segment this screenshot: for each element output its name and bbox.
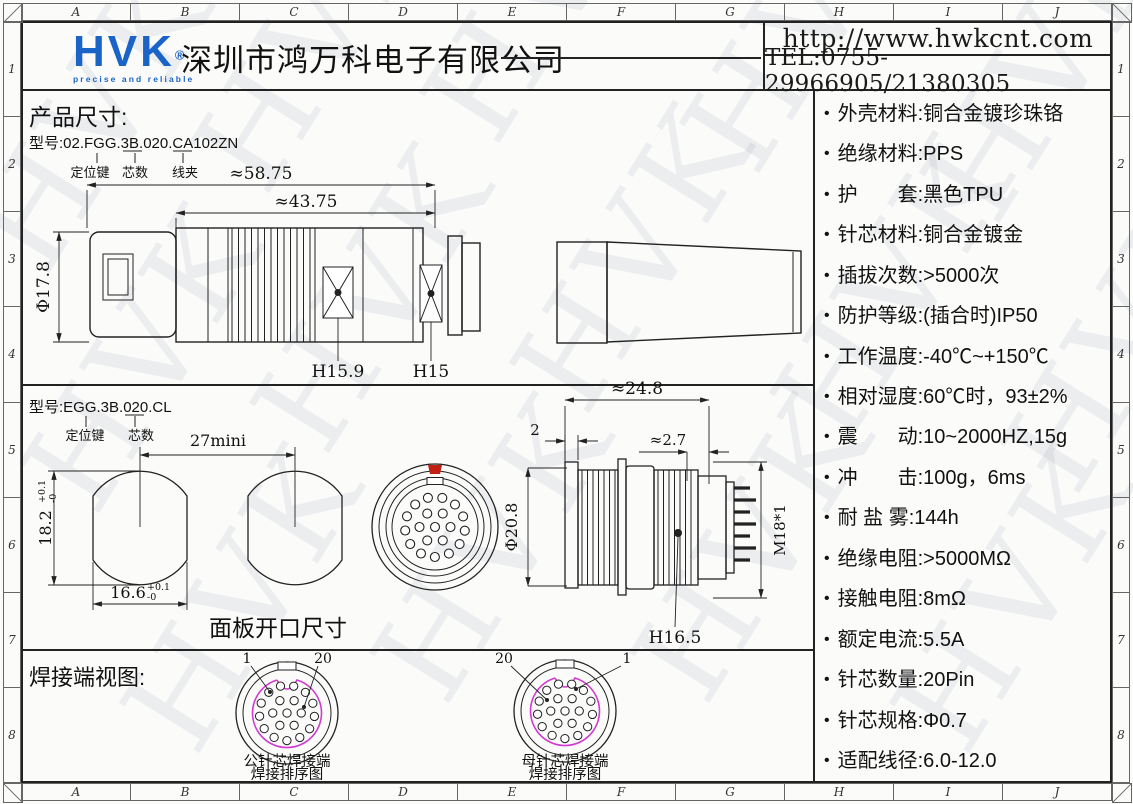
female-solder-view: [514, 660, 616, 762]
dim-receptacle-length: ≈24.8: [611, 379, 663, 399]
spec-text: 绝缘材料:PPS: [838, 137, 964, 166]
drawing-frame: HVK® precise and reliable 深圳市鸿万科电子有限公司 h…: [21, 21, 1112, 783]
plug-details: [103, 228, 413, 342]
grid-number: 5: [4, 403, 20, 498]
bullet-icon: •: [824, 388, 830, 406]
grid-number: 2: [1113, 117, 1129, 212]
female-pin-first-label: 1: [623, 651, 632, 667]
bullet-icon: •: [824, 105, 830, 123]
tolerance-minus: -0: [147, 592, 156, 603]
section-product-dimensions: 产品尺寸: 型号:02.FGG.3B.020.CA102ZN 定位键 芯数 线夹…: [29, 104, 801, 382]
hex-leader: [675, 537, 678, 627]
callout-pin-count: 芯数: [128, 428, 154, 443]
frame-corner: [3, 783, 23, 803]
spec-item: • 冲 击:100g，6ms: [824, 461, 1108, 490]
grid-number: 4: [1113, 307, 1129, 402]
grid-letter: H: [785, 4, 894, 20]
crimp-symbol-1: [323, 267, 353, 361]
dimension-lines: [48, 447, 295, 610]
tolerance-minus: -0: [48, 494, 59, 503]
bullet-icon: •: [824, 186, 830, 204]
grid-letter: I: [894, 4, 1003, 20]
grid-letter: H: [785, 784, 894, 800]
spec-text: 针芯数量:20Pin: [838, 663, 975, 692]
technical-drawing: 产品尺寸: 型号:02.FGG.3B.020.CA102ZN 定位键 芯数 线夹…: [23, 89, 813, 780]
spec-text: 接触电阻:8mΩ: [838, 582, 966, 611]
male-pin-first-label: 1: [243, 651, 252, 667]
bullet-icon: •: [824, 550, 830, 568]
bullet-icon: •: [824, 509, 830, 527]
spec-item: • 绝缘电阻:>5000MΩ: [824, 542, 1108, 571]
bullet-icon: •: [824, 226, 830, 244]
thread-lines: [582, 470, 691, 585]
spec-text: 工作温度:-40℃~+150℃: [838, 340, 1049, 369]
grid-number: 4: [4, 307, 20, 402]
callout-keying: 定位键: [65, 428, 104, 443]
model-number-plug: 型号:02.FGG.3B.020.CA102ZN: [29, 135, 238, 152]
leader-dot: [574, 687, 578, 691]
grid-number: 5: [1113, 403, 1129, 498]
dim-center-spacing: 27mini: [190, 431, 246, 450]
spec-text: 外壳材料:铜合金镀珍珠铬: [838, 97, 1064, 126]
dim-back-gap: ≈2.7: [650, 431, 686, 449]
spec-item: • 外壳材料:铜合金镀珍珠铬: [824, 97, 1108, 126]
dim-receptacle-diameter: Φ20.8: [502, 503, 521, 552]
spec-text: 震 动:10~2000HZ,15g: [838, 420, 1068, 449]
hex-reference-dot: [674, 529, 682, 537]
model2-callout-leaders: [86, 415, 144, 427]
spec-item: • 针芯规格:Φ0.7: [824, 704, 1108, 733]
contact-block: http://www.hwkcnt.com TEL:0755-29966905/…: [763, 23, 1111, 89]
grid-letter: F: [567, 4, 676, 20]
grid-letter: D: [349, 784, 458, 800]
model-number-receptacle: 型号:EGG.3B.020.CL: [29, 399, 172, 416]
callout-pin-count: 芯数: [122, 165, 148, 180]
grid-numbers-right: 12345678: [1112, 21, 1130, 783]
dim-flange-thickness: 2: [530, 421, 540, 439]
grid-number: 8: [1113, 688, 1129, 782]
grid-letter: F: [567, 784, 676, 800]
leader-dot: [545, 698, 549, 702]
keying-mark-red: [428, 465, 442, 474]
datasheet-page: HVK HVK HVK HVK HVK HVK HVK HVK HVK HVK …: [0, 0, 1133, 804]
grid-number: 1: [4, 22, 20, 117]
spec-item: • 防护等级:(插合时)IP50: [824, 299, 1108, 328]
grid-number: 8: [4, 688, 20, 782]
bullet-icon: •: [824, 348, 830, 366]
spec-text: 针芯材料:铜合金镀金: [838, 218, 1024, 247]
grid-letter: A: [22, 784, 131, 800]
male-caption-line2: 焊接排序图: [251, 766, 324, 780]
grid-letter: C: [240, 4, 349, 20]
key-notch: [427, 478, 443, 485]
bullet-icon: •: [824, 145, 830, 163]
telephone: TEL:0755-29966905/21380305: [765, 56, 1111, 86]
leader-dot: [302, 705, 306, 709]
section-solder-views: 焊接端视图: 1 20 公针芯焊接端 焊接排序图 20 1 母针芯焊接端 焊接排…: [29, 651, 631, 780]
callout-leaders: [97, 153, 183, 163]
strain-relief-boot-view: [557, 242, 801, 343]
grid-letter: E: [458, 784, 567, 800]
spec-item: • 针芯材料:铜合金镀金: [824, 218, 1108, 247]
female-pin1-leader: [576, 666, 621, 689]
grid-letter: G: [676, 4, 785, 20]
spec-text: 耐 盐 雾:144h: [838, 501, 959, 530]
logo-text: HVK: [73, 27, 175, 76]
spec-text: 针芯规格:Φ0.7: [838, 704, 967, 733]
dim-hex-receptacle: H16.5: [649, 628, 702, 648]
grid-number: 1: [1113, 22, 1129, 117]
spec-text: 插拔次数:>5000次: [838, 259, 1000, 288]
dim-cutout-width: 16.6: [110, 583, 146, 602]
bullet-icon: •: [824, 469, 830, 487]
specifications-column: • 外壳材料:铜合金镀珍珠铬 • 绝缘材料:PPS • 护 套:黑色TPU • …: [813, 89, 1110, 781]
grid-letter: B: [131, 4, 240, 20]
dimension-lines: [528, 400, 767, 598]
logo-tagline: precise and reliable: [73, 75, 194, 84]
grid-letters-bottom: ABCDEFGHIJ: [21, 783, 1112, 801]
male-solder-view: [236, 662, 338, 764]
section1-title: 产品尺寸:: [29, 104, 127, 130]
bullet-icon: •: [824, 267, 830, 285]
frame-corner: [1112, 783, 1132, 803]
leader-dot: [268, 690, 272, 694]
spec-item: • 接触电阻:8mΩ: [824, 582, 1108, 611]
dim-hex2: H15: [413, 362, 449, 382]
bullet-icon: •: [824, 590, 830, 608]
grid-letter: A: [22, 4, 131, 20]
female-caption-line2: 焊接排序图: [529, 766, 602, 780]
grid-number: 7: [4, 593, 20, 688]
bullet-icon: •: [824, 307, 830, 325]
grid-number: 3: [4, 212, 20, 307]
male-pin-last-label: 20: [314, 651, 332, 667]
frame-corner: [3, 3, 23, 23]
section-panel-cutout: 型号:EGG.3B.020.CL 定位键 芯数 27mini 18.2 +0.1…: [29, 379, 789, 648]
crimp-symbol-2: [420, 265, 442, 361]
spec-item: • 绝缘材料:PPS: [824, 137, 1108, 166]
section3-title: 焊接端视图:: [29, 665, 145, 690]
grid-letter: J: [1003, 784, 1111, 800]
grid-letter: D: [349, 4, 458, 20]
strain-relief-ribs: [232, 228, 310, 342]
bullet-icon: •: [824, 428, 830, 446]
grid-number: 7: [1113, 593, 1129, 688]
spec-item: • 适配线径:6.0-12.0: [824, 744, 1108, 773]
tolerance-plus: +0.1: [37, 480, 48, 503]
grid-number: 3: [1113, 212, 1129, 307]
dim-thread-spec: M18*1: [771, 504, 789, 556]
frame-corner: [1112, 3, 1132, 23]
spec-item: • 额定电流:5.5A: [824, 623, 1108, 652]
dim-body-length: ≈43.75: [275, 192, 338, 212]
receptacle-side-view: [528, 400, 767, 627]
grid-letters-top: ABCDEFGHIJ: [21, 3, 1112, 21]
spec-item: • 护 套:黑色TPU: [824, 178, 1108, 207]
grid-letter: C: [240, 784, 349, 800]
spec-item: • 工作温度:-40℃~+150℃: [824, 340, 1108, 369]
dim-plug-diameter: Φ17.8: [34, 261, 54, 313]
callout-cable-clamp: 线夹: [172, 165, 198, 180]
spec-text: 额定电流:5.5A: [838, 623, 965, 652]
panel-cutout-label: 面板开口尺寸: [209, 615, 347, 641]
spec-item: • 震 动:10~2000HZ,15g: [824, 420, 1108, 449]
spec-list: • 外壳材料:铜合金镀珍珠铬 • 绝缘材料:PPS • 护 套:黑色TPU • …: [815, 89, 1110, 781]
spec-text: 防护等级:(插合时)IP50: [838, 299, 1038, 328]
title-block: HVK® precise and reliable 深圳市鸿万科电子有限公司 h…: [23, 23, 1110, 91]
bullet-icon: •: [824, 752, 830, 770]
grid-number: 2: [4, 117, 20, 212]
grid-letter: B: [131, 784, 240, 800]
spec-item: • 针芯数量:20Pin: [824, 663, 1108, 692]
dim-total-length: ≈58.75: [230, 164, 293, 184]
grid-number: 6: [4, 498, 20, 593]
spec-text: 冲 击:100g，6ms: [838, 461, 1026, 490]
dim-hex1: H15.9: [312, 362, 365, 382]
bullet-icon: •: [824, 712, 830, 730]
dimension-lines: [53, 185, 435, 342]
grid-letter: G: [676, 784, 785, 800]
spec-text: 相对湿度:60℃时，93±2%: [838, 380, 1068, 409]
female-pin-last-label: 20: [495, 651, 513, 667]
grid-letter: E: [458, 4, 567, 20]
grid-number: 6: [1113, 498, 1129, 593]
spec-text: 适配线径:6.0-12.0: [838, 744, 997, 773]
company-underline: [501, 57, 761, 59]
spec-text: 护 套:黑色TPU: [838, 178, 1004, 207]
bullet-icon: •: [824, 631, 830, 649]
grid-numbers-left: 12345678: [3, 21, 21, 783]
callout-keying: 定位键: [70, 165, 109, 180]
bullet-icon: •: [824, 671, 830, 689]
spec-item: • 插拔次数:>5000次: [824, 259, 1108, 288]
solder-pins: [734, 488, 756, 560]
company-logo: HVK® precise and reliable: [73, 30, 194, 84]
dim-cutout-height: 18.2: [36, 510, 55, 546]
grid-letter: J: [1003, 4, 1111, 20]
spec-item: • 耐 盐 雾:144h: [824, 501, 1108, 530]
spec-text: 绝缘电阻:>5000MΩ: [838, 542, 1011, 571]
connector-face-view: [372, 464, 498, 590]
grid-letter: I: [894, 784, 1003, 800]
spec-item: • 相对湿度:60℃时，93±2%: [824, 380, 1108, 409]
